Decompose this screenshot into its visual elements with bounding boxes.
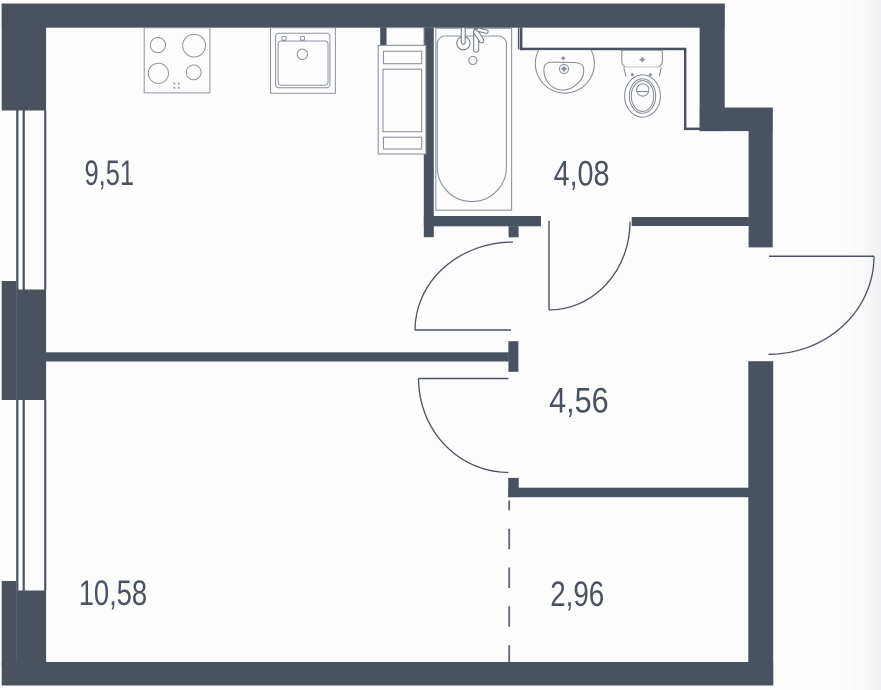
svg-text:10,58: 10,58 bbox=[79, 573, 147, 613]
svg-text:4,08: 4,08 bbox=[554, 153, 610, 193]
svg-text:9,51: 9,51 bbox=[85, 153, 135, 193]
svg-text:2,96: 2,96 bbox=[550, 574, 604, 614]
svg-text:4,56: 4,56 bbox=[549, 380, 609, 420]
